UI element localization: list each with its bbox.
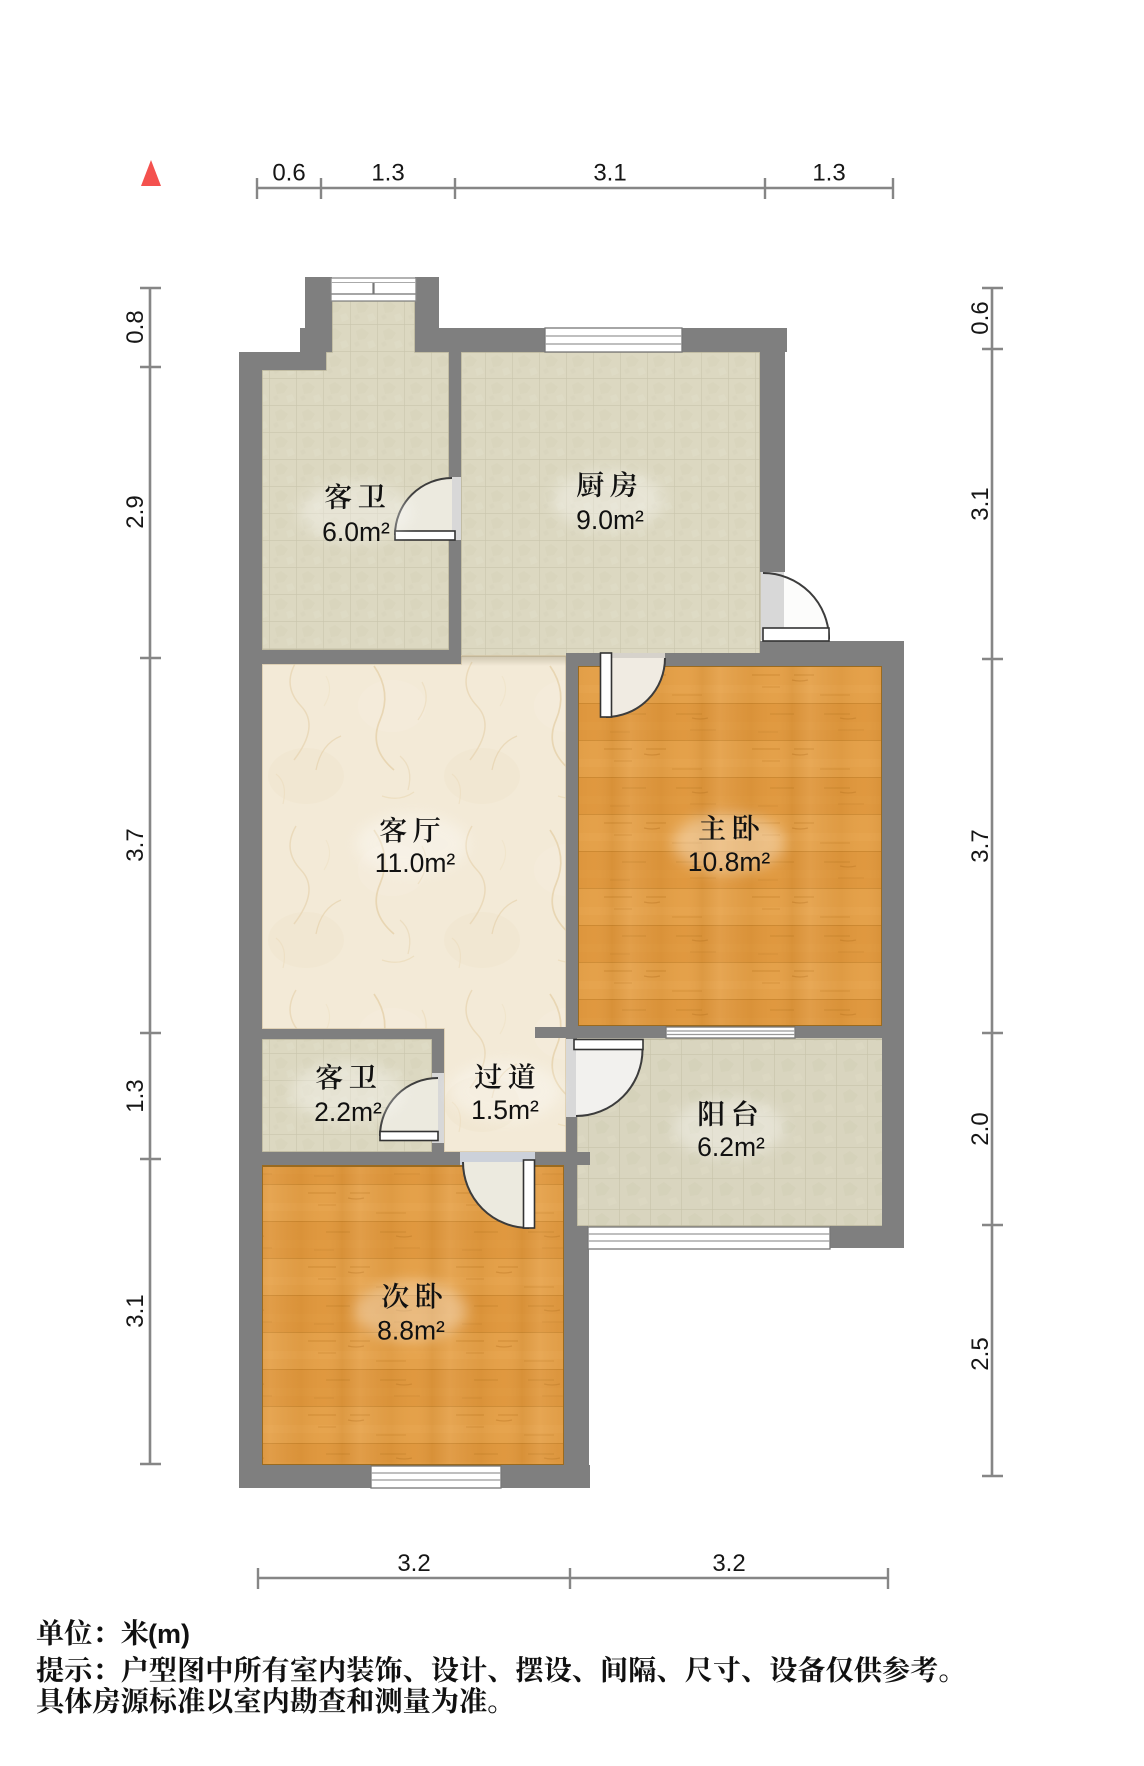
- svg-text:2.0: 2.0: [967, 1112, 994, 1145]
- svg-text:6.2m²: 6.2m²: [697, 1132, 765, 1162]
- svg-text:3.2: 3.2: [397, 1550, 430, 1577]
- svg-text:1.3: 1.3: [371, 160, 404, 187]
- svg-text:3.1: 3.1: [967, 487, 994, 520]
- svg-text:1.3: 1.3: [812, 160, 845, 187]
- svg-text:0.6: 0.6: [272, 160, 305, 187]
- svg-text:2.2m²: 2.2m²: [314, 1097, 382, 1127]
- svg-text:3.1: 3.1: [593, 160, 626, 187]
- svg-text:6.0m²: 6.0m²: [322, 517, 390, 547]
- svg-text:2.9: 2.9: [122, 495, 149, 528]
- svg-text:3.7: 3.7: [122, 828, 149, 861]
- svg-text:0.6: 0.6: [967, 301, 994, 334]
- svg-text:3.2: 3.2: [712, 1550, 745, 1577]
- svg-text:10.8m²: 10.8m²: [688, 847, 771, 877]
- svg-text:3.7: 3.7: [967, 829, 994, 862]
- svg-text:1.3: 1.3: [122, 1079, 149, 1112]
- svg-text:9.0m²: 9.0m²: [576, 505, 644, 535]
- svg-text:1.5m²: 1.5m²: [471, 1095, 539, 1125]
- svg-text:0.8: 0.8: [122, 310, 149, 343]
- svg-text:8.8m²: 8.8m²: [377, 1316, 445, 1346]
- svg-text:(m): (m): [148, 1619, 190, 1649]
- svg-text:11.0m²: 11.0m²: [375, 848, 456, 878]
- svg-text:2.5: 2.5: [967, 1337, 994, 1370]
- svg-text:3.1: 3.1: [122, 1294, 149, 1327]
